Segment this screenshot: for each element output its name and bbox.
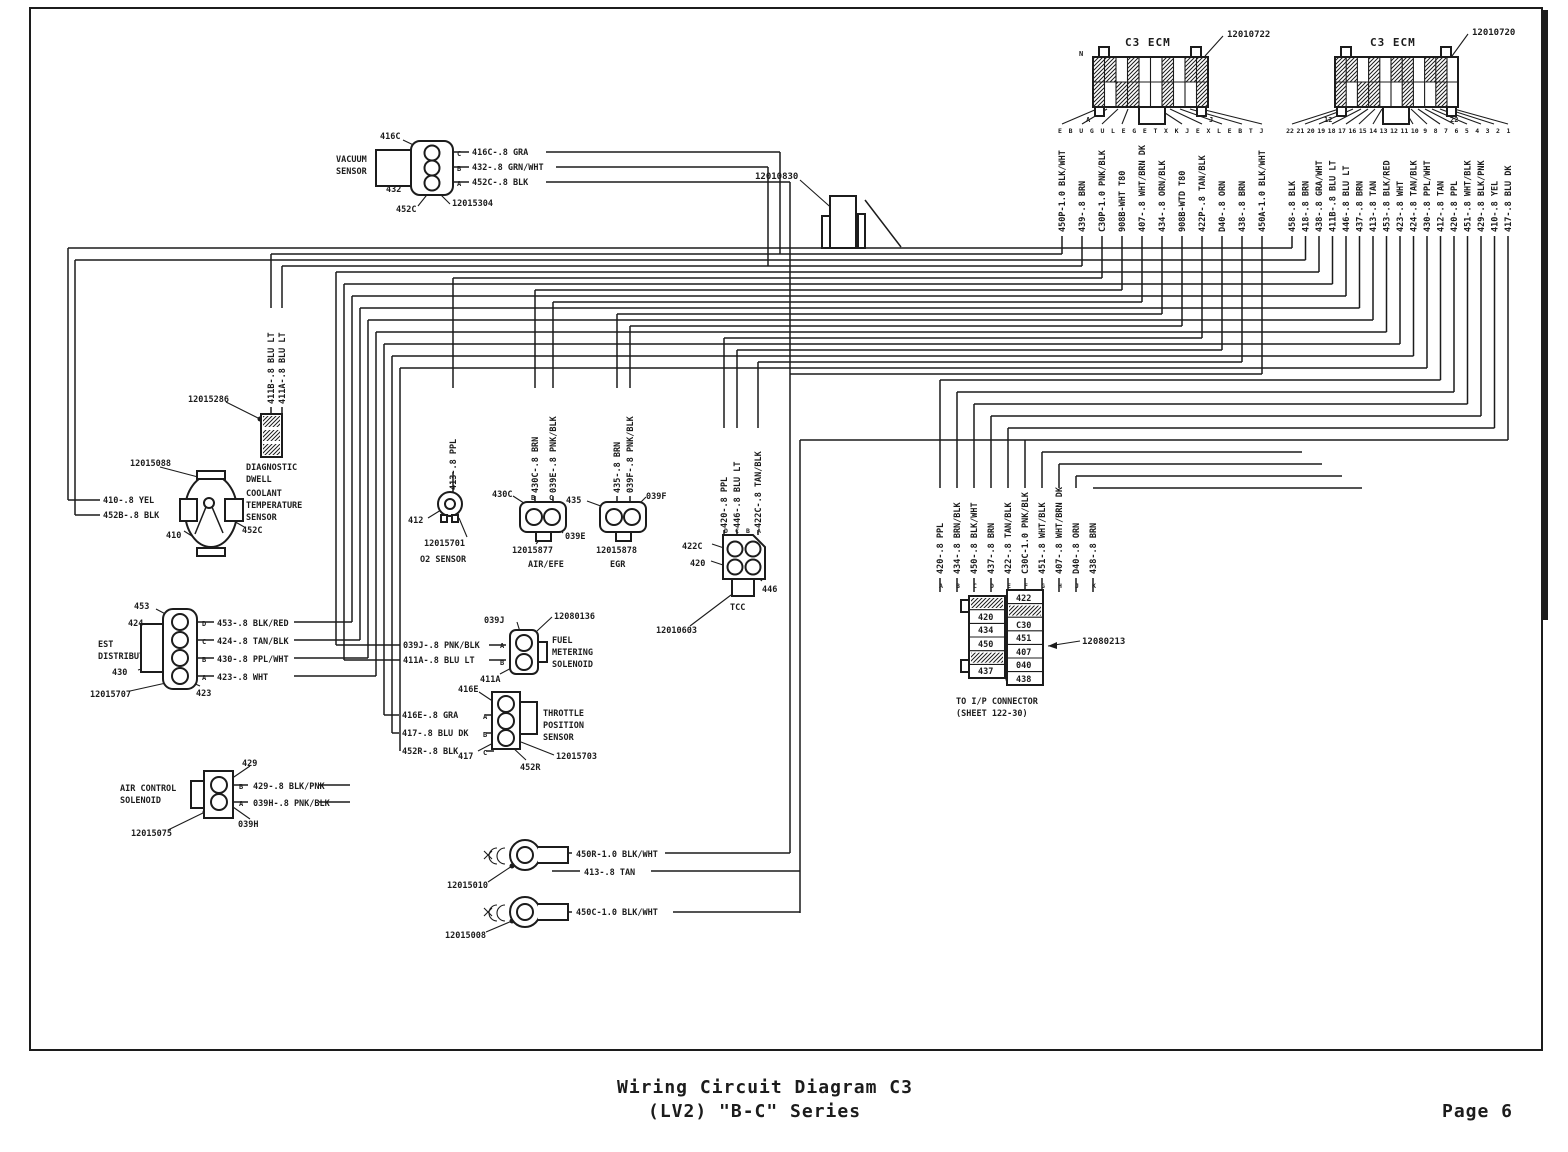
svg-text:040: 040 [1016, 661, 1031, 671]
svg-text:SOLENOID: SOLENOID [120, 796, 161, 806]
scan-edge-artifact [1543, 10, 1548, 620]
pin-label: 5 [1465, 127, 1469, 135]
pin-label: B [956, 582, 960, 590]
ecm-left-part-number: 12010722 [1227, 30, 1270, 40]
svg-text:C: C [457, 150, 461, 158]
pin-label: 12 [1390, 127, 1398, 135]
throttle-position-sensor: 416E 417 452R 12015703 A B C THROTTLE PO… [402, 685, 597, 773]
est-wire-1: 453-.8 BLK/RED [217, 619, 289, 629]
diagnostic-connector: 12015286 DIAGNOSTIC DWELL 411B-.8 BLU LT… [188, 332, 297, 485]
svg-text:407: 407 [1016, 648, 1031, 658]
pin-label: U [1100, 127, 1104, 135]
fms-callout-top: 039J [484, 616, 504, 626]
est-distributor: EST DISTRIBUTOR 453 424 430 423 12015707… [90, 602, 290, 700]
pin-label: 17 [1338, 127, 1346, 135]
pin-label: J [1259, 127, 1263, 135]
air-solenoid-wire-1: 429-.8 BLK/PNK [253, 782, 326, 792]
wire-label: D40-.8 ORN [1072, 523, 1082, 574]
pin-label: E [1007, 582, 1011, 590]
ecm-right-corner-bottom-right: 22 [1450, 116, 1458, 124]
wire-label: 407-.8 WHT/BRN DK [1055, 486, 1065, 574]
ecm-right-pin-row: 22212019181716151413121110987654321 [1286, 127, 1510, 135]
wire-label: 453-.8 BLK/RED [1383, 160, 1393, 232]
ecm-left-title: C3 ECM [1125, 36, 1171, 49]
pin-label: 18 [1328, 127, 1336, 135]
air-efe-callout-left: 430C [492, 490, 512, 500]
est-wire-2: 424-.8 TAN/BLK [217, 637, 290, 647]
wire-label: 451-.8 WHT/BLK [1464, 159, 1474, 232]
est-wire-3: 430-.8 PPL/WHT [217, 655, 289, 665]
svg-text:450: 450 [978, 640, 993, 650]
wire-label: C30C-1.0 PNK/BLK [1021, 491, 1031, 574]
pin-label: B [1069, 127, 1073, 135]
pin-label: 22 [1286, 127, 1294, 135]
svg-text:438: 438 [1016, 675, 1031, 685]
scanned-wiring-diagram-page: C3 ECM 12010722 N A J EBUGULEGETXKJEXLEB… [0, 0, 1568, 1152]
vacuum-sensor-name: VACUUM [336, 155, 367, 165]
svg-text:DWELL: DWELL [246, 475, 272, 485]
fms-wire-1: 039J-.8 PNK/BLK [403, 641, 481, 651]
pin-label: 19 [1317, 127, 1325, 135]
air-efe-connector: B C 430C 039E 12015877 AIR/EFE 430C-.8 B… [492, 415, 585, 570]
wire-label: C30P-1.0 PNK/BLK [1098, 149, 1108, 232]
est-callout-4: 423 [196, 689, 211, 699]
wiring-diagram-canvas: C3 ECM 12010722 N A J EBUGULEGETXKJEXLEB… [0, 0, 1568, 1152]
coolant-temperature-sensor: 12015088 COOLANT TEMPERATURE SENSOR 410-… [103, 459, 302, 556]
egr-name: EGR [610, 560, 626, 570]
tcc-callout-c: 446 [762, 585, 777, 595]
ecm-left-corner-top: N [1079, 50, 1083, 58]
pin-label: E [1143, 127, 1147, 135]
egr-wire-1: 435-.8 BRN [613, 442, 623, 493]
pin-label: J [1185, 127, 1189, 135]
ecm-right-part-number: 12010720 [1472, 28, 1515, 38]
svg-text:C: C [483, 749, 487, 757]
pin-label: 7 [1444, 127, 1448, 135]
vacuum-callout-mid: 432 [386, 185, 401, 195]
est-callout-1: 453 [134, 602, 149, 612]
wire-label: 418-.8 BRN [1302, 181, 1312, 232]
coolant-callout-left: 410 [166, 531, 181, 541]
wire-label: 908B-WTD T80 [1178, 171, 1188, 232]
ip-part-number: 12080213 [1082, 637, 1125, 647]
svg-text:A: A [457, 180, 462, 188]
svg-text:437: 437 [978, 667, 993, 677]
o2-wire: 413-.8 PPL [449, 439, 459, 490]
tcc-callout-b: 420 [690, 559, 705, 569]
pin-label: 4 [1475, 127, 1479, 135]
svg-text:B: B [239, 783, 243, 791]
wire-label: 434-.8 ORN/BLK [1158, 159, 1168, 232]
vacuum-part-number: 12015304 [452, 199, 493, 209]
tps-callout-top: 416E [458, 685, 478, 695]
pin-label: H [1058, 582, 1062, 590]
pin-label: E [1058, 127, 1062, 135]
svg-text:B: B [531, 494, 535, 502]
pin-label: T [1153, 127, 1157, 135]
ecm-left-corner-bottom-right: J [1209, 116, 1213, 124]
pin-label: 15 [1359, 127, 1367, 135]
wire-label: 429-.8 BLK/PNK [1477, 159, 1487, 232]
o2-part-number: 12015701 [424, 539, 465, 549]
wire-label: 446-.8 BLU LT [1342, 165, 1352, 232]
tcc-name: TCC [730, 603, 745, 613]
pin-label: A [939, 582, 943, 590]
wire-label: 451-.8 WHT/BLK [1038, 501, 1048, 574]
svg-text:SENSOR: SENSOR [246, 513, 278, 523]
egr-part-number: 12015878 [596, 546, 637, 556]
egr-connector: 435 039F 12015878 EGR 435-.8 BRN 039F-.8… [566, 415, 666, 570]
air-solenoid-callout-bottom: 039H [238, 820, 258, 830]
svg-text:C: C [202, 638, 206, 646]
pin-label: J [1075, 582, 1079, 590]
fms-callout-bottom: 411A [480, 675, 500, 685]
coolant-callout-right: 452C [242, 526, 262, 536]
egr-wire-2: 039F-.8 PNK/BLK [626, 415, 636, 493]
wire-label: 438-.8 BRN [1089, 523, 1099, 574]
svg-text:C30: C30 [1016, 621, 1031, 631]
pin-label: E [1122, 127, 1126, 135]
air-efe-wire-2: 039E-.8 PNK/BLK [549, 415, 559, 493]
pin-label: 16 [1348, 127, 1356, 135]
air-solenoid-part-number: 12015075 [131, 829, 172, 839]
ecm-right-corner-bottom-left: 12 [1324, 116, 1332, 124]
pin-label: C [735, 527, 739, 535]
svg-text:C: C [549, 494, 553, 502]
svg-text:451: 451 [1016, 634, 1031, 644]
pin-label: 2 [1496, 127, 1500, 135]
pin-label: 1 [1506, 127, 1510, 135]
pin-label: 13 [1380, 127, 1388, 135]
diagnostic-wire-1: 411B-.8 BLU LT [267, 332, 277, 404]
ring1-part-number: 12015010 [447, 881, 488, 891]
est-name: EST [98, 640, 113, 650]
tcc-connector: 422C 420 446 12010603 TCC 420-.8 PPL 446… [656, 450, 777, 636]
tps-name: THROTTLE [543, 709, 584, 719]
wire-label: 450P-1.0 BLK/WHT [1058, 150, 1068, 232]
pin-label: T [1249, 127, 1253, 135]
diagram-title-line2: (LV2) "B-C" Series [648, 1101, 861, 1122]
o2-sensor: 412 12015701 O2 SENSOR 413-.8 PPL [408, 439, 467, 565]
pin-label: 21 [1296, 127, 1304, 135]
pin-label: B [1238, 127, 1242, 135]
ring1-wire-2: 413-.8 TAN [584, 868, 635, 878]
svg-text:434: 434 [978, 626, 993, 636]
pin-label: D [990, 582, 994, 590]
wire-label: 417-.8 BLU DK [1504, 165, 1514, 232]
coolant-wire-1: 410-.8 YEL [103, 496, 154, 506]
vacuum-wire-3: 452C-.8 BLK [472, 178, 529, 188]
pin-label: X [1164, 127, 1168, 135]
wire-label: 438-.8 GRA/WHT [1315, 160, 1325, 232]
ring2-part-number: 12015008 [445, 931, 486, 941]
svg-text:A: A [500, 642, 505, 650]
pin-label: E [1196, 127, 1200, 135]
pin-label: 6 [1454, 127, 1458, 135]
wire-label: 422P-.8 TAN/BLK [1198, 154, 1208, 232]
pin-label: B [746, 527, 750, 535]
ring-terminal-2: 12015008 450C-1.0 BLK/WHT [445, 897, 658, 941]
pin-label: 20 [1307, 127, 1315, 135]
ip-pin-row: ABCDEFGHJK [939, 582, 1096, 590]
diagnostic-name: DIAGNOSTIC [246, 463, 297, 473]
svg-text:B: B [483, 731, 487, 739]
tcc-wire-2: 446-.8 BLU LT [733, 461, 743, 528]
pin-label: F [1024, 582, 1028, 590]
tps-wire-1: 416E-.8 GRA [402, 711, 458, 721]
svg-text:SENSOR: SENSOR [336, 167, 368, 177]
wire-label: 430-.8 PPL/WHT [1423, 160, 1433, 232]
tcc-wire-3: 422C-.8 TAN/BLK [754, 450, 764, 528]
fms-name: FUEL [552, 636, 572, 646]
egr-callout-right: 039F [646, 492, 666, 502]
pin-label: 11 [1400, 127, 1408, 135]
est-callout-2: 424 [128, 619, 143, 629]
ip-cell: 420 [978, 613, 993, 623]
tps-callout-bottom-left: 417 [458, 752, 473, 762]
air-efe-part-number: 12015877 [512, 546, 553, 556]
air-solenoid-wire-2: 039H-.8 PNK/BLK [253, 799, 331, 809]
wire-label: 908B-WHT T80 [1118, 171, 1128, 232]
coolant-wire-2: 452B-.8 BLK [103, 511, 160, 521]
coolant-name: COOLANT [246, 489, 282, 499]
vacuum-callout-bottom: 452C [396, 205, 416, 215]
svg-text:B: B [457, 165, 461, 173]
tcc-part-number: 12010603 [656, 626, 697, 636]
wire-label: 411B-.8 BLU LT [1329, 160, 1339, 232]
tps-part-number: 12015703 [556, 752, 597, 762]
pin-label: K [1092, 582, 1096, 590]
svg-text:A: A [202, 674, 207, 682]
wire-label: 423-.8 WHT [1396, 181, 1406, 232]
wire-label: 458-.8 BLK [1288, 180, 1298, 232]
vacuum-wire-1: 416C-.8 GRA [472, 148, 528, 158]
wire-label: 438-.8 BRN [1238, 181, 1248, 232]
ecm-right-title: C3 ECM [1370, 36, 1416, 49]
pin-label: K [1175, 127, 1179, 135]
air-solenoid-callout-top: 429 [242, 759, 257, 769]
wire-label: 439-.8 BRN [1078, 181, 1088, 232]
fms-part-number: 12080136 [554, 612, 595, 622]
fuel-metering-solenoid: 039J 411A 12080136 A B FUEL METERING SOL… [403, 612, 595, 685]
svg-text:A: A [239, 800, 244, 808]
pin-label: 9 [1423, 127, 1427, 135]
o2-callout: 412 [408, 516, 423, 526]
ring-terminal-1: 12015010 450R-1.0 BLK/WHT 413-.8 TAN [447, 840, 658, 891]
ring1-wire-1: 450R-1.0 BLK/WHT [576, 850, 658, 860]
ip-wire-labels: 420-.8 PPL434-.8 BRN/BLK450-.8 BLK/WHT43… [936, 486, 1099, 574]
ecm-connector-left: C3 ECM 12010722 N A J [1079, 30, 1270, 124]
svg-text:POSITION: POSITION [543, 721, 584, 731]
air-solenoid-name: AIR CONTROL [120, 784, 176, 794]
pin-label: 3 [1486, 127, 1490, 135]
fms-wire-2: 411A-.8 BLU LT [403, 656, 475, 666]
tps-callout-bottom: 452R [520, 763, 541, 773]
ecm-right-wire-labels: 458-.8 BLK418-.8 BRN438-.8 GRA/WHT411B-.… [1288, 159, 1514, 232]
pin-label: 8 [1434, 127, 1438, 135]
svg-text:SOLENOID: SOLENOID [552, 660, 593, 670]
wire-label: 420-.8 PPL [936, 523, 946, 574]
wire-label: 424-.8 TAN/BLK [1410, 159, 1420, 232]
pin-label: L [1217, 127, 1221, 135]
tps-wire-2: 417-.8 BLU DK [402, 729, 469, 739]
ecm-left-wire-labels: 450P-1.0 BLK/WHT439-.8 BRNC30P-1.0 PNK/B… [1058, 144, 1268, 232]
air-efe-callout-right: 039E [565, 532, 585, 542]
svg-text:B: B [202, 656, 206, 664]
wire-label: 450A-1.0 BLK/WHT [1258, 150, 1268, 232]
pin-label: G [1132, 127, 1136, 135]
diagram-title-line1: Wiring Circuit Diagram C3 [617, 1077, 913, 1098]
pin-label: U [1079, 127, 1083, 135]
est-part-number: 12015707 [90, 690, 131, 700]
wire-label: 412-.8 TAN [1437, 181, 1447, 232]
wire-label: 413-.8 TAN [1369, 181, 1379, 232]
wire-label: 407-.8 WHT/BRN DK [1138, 144, 1148, 232]
diagnostic-wire-2: 411A-.8 BLU LT [278, 332, 288, 404]
wire-label: 437-.8 BRN [1356, 181, 1366, 232]
svg-text:D: D [202, 620, 206, 628]
svg-text:422: 422 [1016, 594, 1031, 604]
vacuum-wire-2: 432-.8 GRN/WHT [472, 163, 544, 173]
svg-text:(SHEET 122-30): (SHEET 122-30) [956, 709, 1028, 719]
tcc-callout-a: 422C [682, 542, 702, 552]
egr-callout-left: 435 [566, 496, 581, 506]
wire-label: 420-.8 PPL [1450, 181, 1460, 232]
pin-label: 10 [1411, 127, 1419, 135]
ecm-left-corner-bottom-left: A [1086, 116, 1091, 124]
page-number: Page 6 [1442, 1101, 1513, 1122]
pin-label: C [973, 582, 977, 590]
wire-label: 437-.8 BRN [987, 523, 997, 574]
vacuum-sensor: VACUUM SENSOR 416C 432 452C 12015304 C B… [336, 132, 544, 215]
wire-label: 434-.8 BRN/BLK [953, 501, 963, 574]
ip-name: TO I/P CONNECTOR [956, 697, 1039, 707]
pin-label: L [1111, 127, 1115, 135]
air-efe-name: AIR/EFE [528, 560, 564, 570]
svg-text:TEMPERATURE: TEMPERATURE [246, 501, 302, 511]
air-efe-wire-1: 430C-.8 BRN [531, 437, 541, 493]
ring2-wire: 450C-1.0 BLK/WHT [576, 908, 658, 918]
svg-text:METERING: METERING [552, 648, 593, 658]
o2-name: O2 SENSOR [420, 555, 467, 565]
pin-label: X [1206, 127, 1210, 135]
svg-text:B: B [500, 659, 504, 667]
ip-connector: 420 434 450 437 422 C30 451 407 040 438 … [956, 590, 1125, 719]
svg-text:SENSOR: SENSOR [543, 733, 575, 743]
wire-label: D40-.8 ORN [1218, 181, 1228, 232]
air-control-solenoid: AIR CONTROL SOLENOID 429 039H 12015075 B… [120, 759, 331, 839]
tps-wire-3: 452R-.8 BLK [402, 747, 459, 757]
vacuum-callout-top: 416C [380, 132, 400, 142]
wire-label: 422-.8 TAN/BLK [1004, 501, 1014, 574]
pin-label: G [1041, 582, 1045, 590]
wire-label: 450-.8 BLK/WHT [970, 502, 980, 574]
grommet-part-number: 12010830 [755, 172, 798, 182]
ecm-left-pin-row: EBUGULEGETXKJEXLEBTJ [1058, 127, 1263, 135]
pin-label: D [724, 527, 728, 535]
pin-label: E [1228, 127, 1232, 135]
coolant-part-number: 12015088 [130, 459, 171, 469]
est-callout-3: 430 [112, 668, 127, 678]
svg-text:A: A [483, 713, 488, 721]
diagnostic-part-number: 12015286 [188, 395, 229, 405]
tcc-wire-1: 420-.8 PPL [720, 477, 730, 528]
ecm-fanout-stubs [1062, 109, 1508, 124]
wire-label: 410-.8 YEL [1491, 181, 1501, 232]
est-wire-4: 423-.8 WHT [217, 673, 268, 683]
pin-label: A [757, 527, 761, 535]
harness-grommet: 12010830 [755, 172, 901, 248]
pin-label: 14 [1369, 127, 1377, 135]
pin-label: G [1090, 127, 1094, 135]
